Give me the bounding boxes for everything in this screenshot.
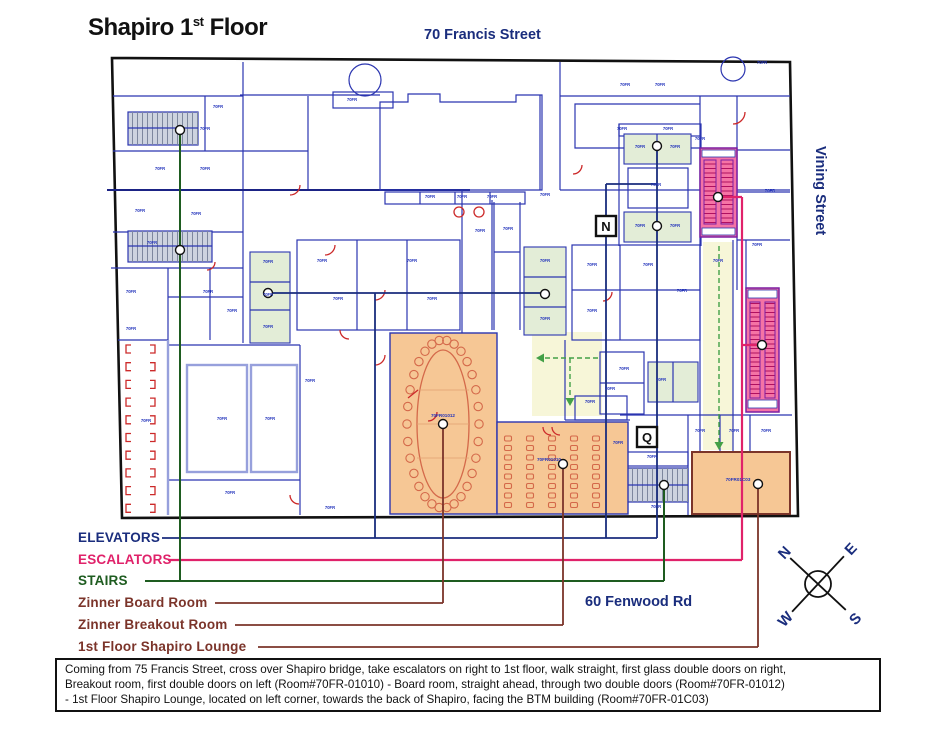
street-label-vining: Vining Street	[812, 146, 828, 235]
svg-text:70FR: 70FR	[141, 418, 151, 423]
highlight-corridor	[703, 242, 733, 450]
svg-text:70FR: 70FR	[605, 386, 615, 391]
page-title: Shapiro 1st Floor	[88, 14, 267, 42]
svg-text:70FR: 70FR	[635, 223, 645, 228]
svg-text:70FR: 70FR	[457, 194, 467, 199]
lounge-room-label: 70FR01C03	[726, 477, 751, 482]
svg-text:70FR: 70FR	[200, 166, 210, 171]
directions-line-2: Breakout room, first double doors on lef…	[65, 678, 871, 693]
svg-text:70FR: 70FR	[265, 416, 275, 421]
svg-text:70FR: 70FR	[225, 490, 235, 495]
svg-text:70FR: 70FR	[655, 82, 665, 87]
svg-text:70FR: 70FR	[155, 166, 165, 171]
svg-text:70FR: 70FR	[317, 258, 327, 263]
svg-text:70FR: 70FR	[425, 194, 435, 199]
svg-text:70FR: 70FR	[663, 126, 673, 131]
svg-text:70FR: 70FR	[263, 324, 273, 329]
svg-text:70FR: 70FR	[620, 82, 630, 87]
breakout-room-label: 70FR01010	[537, 457, 561, 462]
svg-text:70FR: 70FR	[613, 440, 623, 445]
street-label-francis: 70 Francis Street	[424, 27, 541, 43]
svg-text:70FR: 70FR	[347, 97, 357, 102]
stairs-bottom-center	[622, 468, 688, 502]
stairs-top-left	[128, 112, 198, 145]
svg-text:70FR: 70FR	[617, 126, 627, 131]
svg-text:70FR: 70FR	[765, 188, 775, 193]
legend-board-room: Zinner Board Room	[78, 595, 207, 610]
svg-text:70FR: 70FR	[475, 228, 485, 233]
legend-escalators: ESCALATORS	[78, 552, 172, 567]
svg-text:70FR: 70FR	[643, 262, 653, 267]
svg-text:70FR: 70FR	[651, 504, 661, 509]
svg-text:70FR: 70FR	[540, 316, 550, 321]
compass-rose: N E S W	[741, 508, 898, 665]
svg-text:70FR: 70FR	[540, 258, 550, 263]
svg-text:70FR: 70FR	[217, 416, 227, 421]
svg-text:70FR: 70FR	[147, 240, 157, 245]
street-label-fenwood: 60 Fenwood Rd	[585, 594, 692, 610]
compass-east: E	[841, 540, 860, 559]
stairs-mid-left	[128, 231, 212, 262]
svg-text:70FR: 70FR	[677, 288, 687, 293]
board-room-label: 70FR01012	[431, 413, 455, 418]
svg-text:70FR: 70FR	[729, 428, 739, 433]
svg-text:70FR: 70FR	[695, 428, 705, 433]
svg-text:70FR: 70FR	[670, 144, 680, 149]
svg-text:70FR: 70FR	[752, 242, 762, 247]
svg-text:70FR: 70FR	[587, 262, 597, 267]
svg-text:70FR: 70FR	[305, 378, 315, 383]
svg-text:70FR: 70FR	[656, 377, 666, 382]
svg-text:70FR: 70FR	[487, 194, 497, 199]
svg-text:70FR: 70FR	[333, 296, 343, 301]
svg-text:70FR: 70FR	[540, 192, 550, 197]
svg-text:N: N	[601, 219, 610, 234]
svg-text:70FR: 70FR	[263, 259, 273, 264]
compass-west: W	[775, 608, 798, 631]
svg-text:70FR: 70FR	[135, 208, 145, 213]
svg-text:70FR: 70FR	[651, 182, 661, 187]
svg-text:70FR: 70FR	[695, 136, 705, 141]
svg-text:70FR: 70FR	[191, 211, 201, 216]
svg-text:70FR: 70FR	[227, 308, 237, 313]
svg-text:70FR: 70FR	[213, 104, 223, 109]
marker-n: N	[596, 216, 616, 236]
svg-text:70FR: 70FR	[200, 126, 210, 131]
svg-text:70FR: 70FR	[203, 289, 213, 294]
svg-text:70FR: 70FR	[126, 289, 136, 294]
legend-breakout-room: Zinner Breakout Room	[78, 617, 228, 632]
svg-text:70FR: 70FR	[585, 399, 595, 404]
marker-q: Q	[637, 427, 657, 447]
legend-stairs: STAIRS	[78, 573, 128, 588]
svg-text:70FR: 70FR	[761, 428, 771, 433]
legend-elevators: ELEVATORS	[78, 530, 160, 545]
svg-text:70FR: 70FR	[325, 505, 335, 510]
directions-line-3: - 1st Floor Shapiro Lounge, located on l…	[65, 693, 871, 708]
svg-text:Q: Q	[642, 430, 652, 445]
svg-text:70FR: 70FR	[503, 226, 513, 231]
svg-text:70FR: 70FR	[635, 144, 645, 149]
legend-shapiro-lounge: 1st Floor Shapiro Lounge	[78, 639, 246, 654]
floor-plan-page: N Q 70FR01012 70FR01010 70FR01C03 70FR70…	[0, 0, 932, 740]
directions-text-box: Coming from 75 Francis Street, cross ove…	[55, 658, 881, 712]
svg-text:70FR: 70FR	[713, 258, 723, 263]
svg-text:70FR: 70FR	[587, 308, 597, 313]
svg-text:70FR: 70FR	[427, 296, 437, 301]
directions-line-1: Coming from 75 Francis Street, cross ove…	[65, 663, 871, 678]
svg-text:70FR: 70FR	[126, 326, 136, 331]
svg-text:70FR: 70FR	[263, 292, 273, 297]
svg-text:70FR: 70FR	[619, 366, 629, 371]
svg-text:70FR: 70FR	[407, 258, 417, 263]
compass-south: S	[846, 610, 865, 629]
svg-text:70FR: 70FR	[647, 454, 657, 459]
svg-text:70FR: 70FR	[757, 60, 767, 65]
svg-text:70FR: 70FR	[670, 223, 680, 228]
